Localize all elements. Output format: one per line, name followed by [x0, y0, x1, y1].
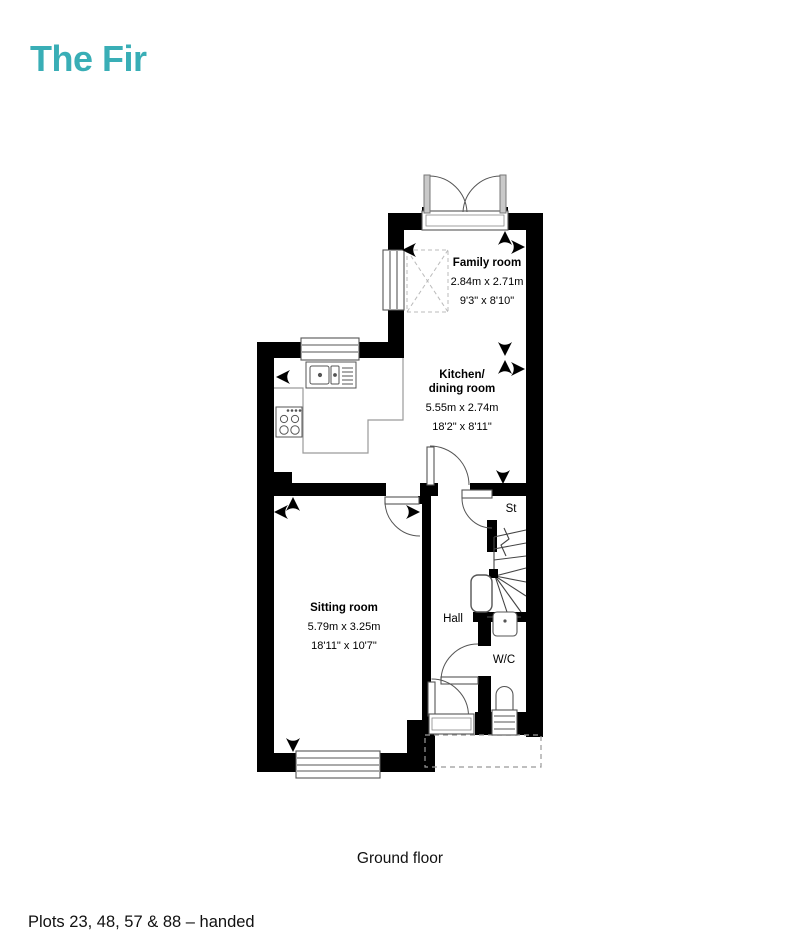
stair-handrail	[471, 575, 492, 612]
kitchen-name-line1: Kitchen/	[426, 368, 499, 382]
label-hall: Hall	[443, 613, 463, 625]
plots-note: Plots 23, 48, 57 & 88 – handed	[28, 913, 255, 932]
sitting-room-imperial: 18'11" x 10'7"	[308, 637, 381, 656]
family-room-metric: 2.84m x 2.71m	[451, 273, 524, 292]
wc-toilet	[492, 687, 517, 736]
wc-fittings	[487, 612, 521, 735]
kitchen-fittings	[274, 358, 403, 453]
floor-caption: Ground floor	[357, 850, 443, 868]
door-kitchen	[427, 446, 469, 485]
floorplan-page: The Fir	[0, 0, 800, 950]
kitchen-imperial: 18'2" x 8'11"	[426, 418, 499, 437]
french-doors	[422, 175, 508, 230]
window-sitting-room	[296, 751, 380, 778]
porch-outline	[425, 735, 541, 767]
label-store: St	[506, 503, 517, 515]
label-wc: W/C	[493, 654, 515, 666]
kitchen-metric: 5.55m x 2.74m	[426, 399, 499, 418]
door-wc	[441, 644, 478, 684]
family-room-imperial: 9'3" x 8'10"	[451, 292, 524, 311]
kitchen-hob	[276, 407, 302, 437]
kitchen-name-line2: dining room	[426, 382, 499, 396]
staircase	[471, 528, 526, 612]
window-family-room	[383, 250, 404, 310]
label-family-room: Family room 2.84m x 2.71m 9'3" x 8'10"	[451, 254, 524, 311]
window-kitchen	[301, 338, 359, 360]
door-sitting-room	[385, 497, 420, 536]
front-door	[428, 679, 474, 734]
ground-floor-plan	[0, 0, 800, 950]
rooflight-outline	[407, 250, 448, 312]
kitchen-sink	[306, 362, 356, 388]
label-sitting-room: Sitting room 5.79m x 3.25m 18'11" x 10'7…	[308, 599, 381, 656]
family-room-name: Family room	[451, 254, 524, 273]
label-kitchen: Kitchen/ dining room 5.55m x 2.74m 18'2"…	[426, 368, 499, 437]
sitting-room-metric: 5.79m x 3.25m	[308, 618, 381, 637]
sitting-room-name: Sitting room	[308, 599, 381, 618]
